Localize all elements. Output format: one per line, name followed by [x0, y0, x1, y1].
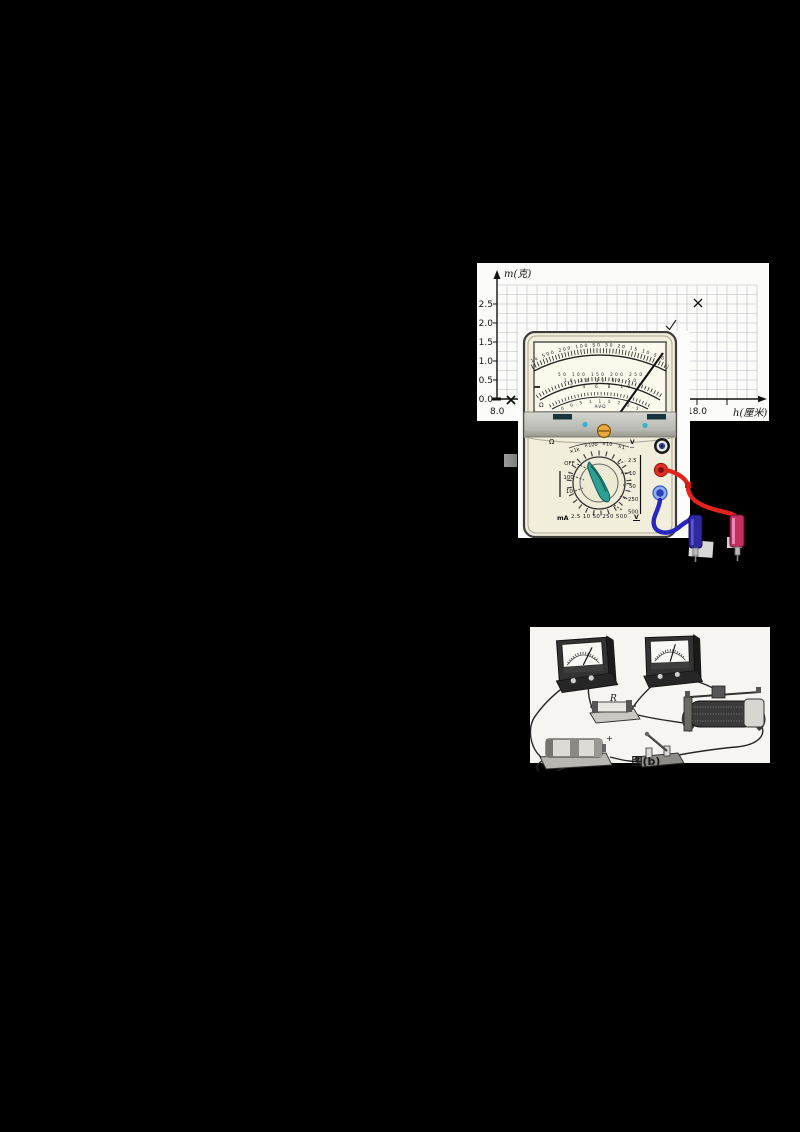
svg-text:2.5: 2.5: [628, 458, 637, 464]
svg-text:2.0: 2.0: [479, 319, 494, 329]
svg-text:1.5: 1.5: [479, 338, 493, 348]
dial-ma-10: 10: [566, 489, 574, 495]
ma-label: mA: [557, 514, 569, 522]
battery-plus-sign: +: [606, 734, 613, 743]
multimeter-figure: 1k 500 200 100 50 30 20 15 10 5 0 50 100…: [513, 331, 759, 567]
voltmeter-terminal[interactable]: [674, 671, 680, 677]
strip-slot-left: [553, 414, 572, 420]
scale-center-label: A-V-Ω: [595, 404, 606, 409]
rheostat-slider[interactable]: [712, 686, 725, 698]
dc-volt-label: V: [634, 514, 639, 521]
svg-text:×10: ×10: [602, 441, 613, 448]
battery: +: [540, 734, 613, 769]
svg-text:0.5: 0.5: [479, 376, 493, 386]
strip-slot-right: [647, 414, 666, 420]
voltmeter: [642, 634, 702, 688]
ac-volt-tilde: ~: [630, 445, 635, 452]
occluded-character-block: [504, 454, 517, 467]
dial-bottom-ranges: 2.5 10 50 250 500: [571, 514, 628, 520]
strip-dot-left: [582, 422, 587, 427]
output-jack[interactable]: [654, 438, 670, 454]
strip-dot-right: [642, 423, 647, 428]
svg-text:1.0: 1.0: [479, 357, 494, 367]
red-lead-joint: [685, 482, 691, 488]
worksheet-page: { "page": {"background": "#000000"}, "gr…: [0, 0, 800, 1132]
svg-text:10: 10: [629, 471, 636, 477]
dial-off-label: OFF: [564, 461, 575, 467]
x-origin-label: 8.0: [490, 407, 505, 417]
ammeter: [553, 635, 618, 693]
svg-text:250: 250: [628, 497, 639, 503]
circuit-experiment-figure: R + 图(b): [530, 627, 774, 771]
svg-text:50: 50: [629, 484, 636, 490]
svg-text:2.5: 2.5: [479, 300, 493, 310]
ammeter-terminal[interactable]: [570, 678, 576, 684]
svg-text:0.0: 0.0: [479, 395, 494, 405]
ammeter-terminal[interactable]: [588, 675, 594, 681]
red-probe[interactable]: [730, 515, 744, 561]
figure-caption: 图(b): [632, 755, 661, 768]
scale-ohm-symbol: Ω: [539, 402, 544, 409]
voltmeter-terminal[interactable]: [657, 673, 663, 679]
dial-ohm-symbol: Ω: [549, 438, 555, 446]
y-axis-title: m(克): [504, 268, 531, 280]
dial-ma-100: 100: [563, 475, 574, 481]
